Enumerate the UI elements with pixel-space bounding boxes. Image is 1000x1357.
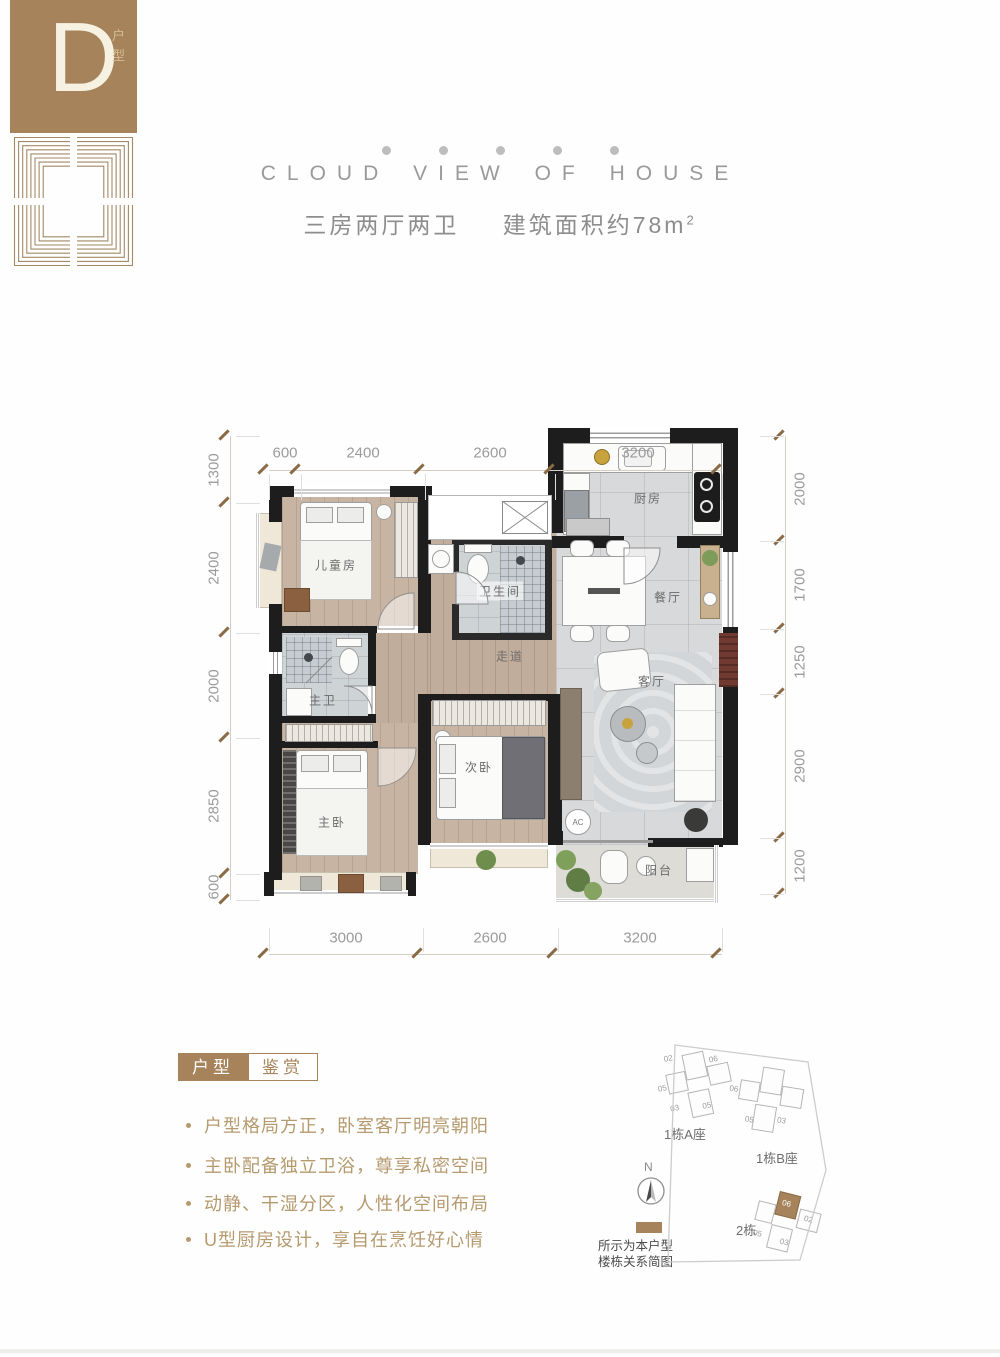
bullet-icon bbox=[186, 1163, 191, 1168]
toilet bbox=[467, 554, 489, 584]
feature-tag-primary: 户型 bbox=[178, 1053, 248, 1081]
room-label-living: 客厅 bbox=[638, 673, 666, 690]
nightstand bbox=[376, 504, 392, 520]
cushion bbox=[300, 876, 322, 891]
dim-right-2: 1700 bbox=[792, 568, 809, 601]
extension-line bbox=[722, 474, 723, 500]
plant bbox=[556, 850, 576, 870]
feature-tag-secondary: 鉴赏 bbox=[248, 1053, 318, 1081]
extension-line bbox=[236, 436, 260, 437]
room-label-dining: 餐厅 bbox=[654, 589, 682, 606]
unit-number: 03 bbox=[776, 1115, 786, 1125]
dim-bottom-1: 3000 bbox=[329, 930, 362, 947]
room-label-corridor: 走道 bbox=[496, 648, 524, 665]
logo-block: D 户型 bbox=[10, 0, 137, 133]
bottom-divider bbox=[0, 1349, 1000, 1353]
feature-item: 户型格局方正，卧室客厅明亮朝阳 bbox=[186, 1112, 606, 1138]
ac-unit: AC bbox=[565, 809, 591, 835]
dim-right-1: 2000 bbox=[792, 472, 809, 505]
unit-number: 05 bbox=[744, 1114, 754, 1124]
pillow bbox=[439, 778, 456, 808]
wall-segment bbox=[648, 838, 723, 847]
sliding-door bbox=[563, 840, 653, 843]
legend-line1: 所示为本户型 bbox=[598, 1238, 673, 1254]
extension-line bbox=[236, 633, 260, 634]
bench bbox=[283, 750, 296, 854]
dimension-tick bbox=[218, 626, 229, 637]
duct-x-box bbox=[502, 501, 548, 534]
plant bbox=[702, 550, 718, 566]
building-1B-label: 1栋B座 bbox=[756, 1148, 798, 1167]
toilet-tank bbox=[464, 544, 492, 553]
pillow bbox=[301, 755, 329, 772]
extension-line bbox=[760, 838, 784, 839]
dining-chair bbox=[570, 625, 594, 642]
dimension-line-right bbox=[785, 436, 786, 894]
north-label: N bbox=[644, 1160, 653, 1174]
extension-line bbox=[760, 694, 784, 695]
dimension-tick bbox=[546, 947, 557, 958]
room-label-bathroom: 卫生间 bbox=[477, 582, 523, 601]
bullet-icon bbox=[186, 1237, 191, 1242]
plant bbox=[476, 850, 496, 870]
dim-left-3: 2000 bbox=[206, 669, 223, 702]
stool bbox=[284, 588, 310, 612]
dimension-tick bbox=[218, 496, 229, 507]
subtitle-rooms: 三房两厅两卫 bbox=[303, 212, 459, 238]
extension-line bbox=[722, 928, 723, 952]
washing-machine bbox=[686, 848, 714, 882]
dimension-line-top bbox=[269, 470, 722, 471]
unit-number: 06 bbox=[708, 1054, 719, 1065]
wall-segment bbox=[418, 694, 431, 845]
page: D 户型 CLOUD VIEW OF HOUSE 三房两厅两卫 建筑面积约78m… bbox=[0, 0, 1000, 1357]
dim-right-4: 2900 bbox=[792, 749, 809, 782]
tv-console bbox=[560, 688, 582, 800]
extension-line bbox=[236, 738, 260, 739]
extension-line bbox=[555, 474, 556, 500]
dim-left-1: 1300 bbox=[206, 453, 223, 486]
extension-line bbox=[423, 928, 424, 952]
building-2-label: 2栋 bbox=[736, 1220, 756, 1239]
pillow bbox=[333, 755, 361, 772]
table-decor bbox=[622, 718, 633, 729]
dimension-tick bbox=[257, 947, 268, 958]
window bbox=[556, 898, 718, 903]
room-label-kitchen: 厨房 bbox=[634, 490, 662, 507]
extension-line bbox=[301, 474, 302, 500]
burner bbox=[700, 500, 713, 513]
dimension-tick bbox=[773, 687, 784, 698]
dimension-tick bbox=[773, 887, 784, 898]
wall-segment bbox=[368, 633, 376, 686]
window bbox=[723, 552, 738, 627]
extension-line bbox=[269, 474, 270, 500]
window bbox=[255, 513, 260, 608]
unit-number: 05 bbox=[657, 1083, 668, 1094]
wardrobe bbox=[432, 700, 546, 726]
wall-segment bbox=[545, 538, 552, 640]
basin-bowl bbox=[432, 550, 450, 568]
window bbox=[294, 486, 390, 497]
logo-label: 户型 bbox=[112, 26, 126, 65]
dimension-tick bbox=[218, 429, 229, 440]
room-label-kids: 儿童房 bbox=[315, 557, 357, 574]
subtitle-sup: 2 bbox=[686, 212, 696, 227]
blanket bbox=[502, 737, 545, 819]
dimension-tick bbox=[218, 867, 229, 878]
building-1B: 06 05 03 bbox=[733, 1063, 807, 1138]
dimension-tick bbox=[773, 534, 784, 545]
bullet-icon bbox=[186, 1123, 191, 1128]
feature-text: U型厨房设计，享自在烹饪好心情 bbox=[204, 1230, 484, 1250]
dining-chair bbox=[606, 625, 630, 642]
feature-text: 主卧配备独立卫浴，尊享私密空间 bbox=[204, 1156, 489, 1176]
dimension-line-left bbox=[230, 436, 231, 900]
window bbox=[269, 652, 282, 674]
decor-plate bbox=[594, 449, 610, 465]
extension-line bbox=[760, 436, 784, 437]
window bbox=[590, 428, 670, 443]
toilet bbox=[339, 648, 359, 675]
pouf bbox=[684, 808, 708, 832]
wall-segment bbox=[264, 872, 274, 896]
pillow bbox=[306, 507, 333, 523]
wall-segment bbox=[269, 640, 282, 880]
window bbox=[430, 843, 548, 849]
dim-top-3: 2600 bbox=[473, 445, 506, 462]
shower-drain bbox=[304, 653, 313, 662]
logo-letter: D bbox=[48, 4, 119, 112]
extension-line bbox=[236, 900, 260, 901]
pillow bbox=[337, 507, 364, 523]
dimension-tick bbox=[773, 831, 784, 842]
dim-right-5: 1200 bbox=[792, 849, 809, 882]
dimension-tick bbox=[411, 947, 422, 958]
extension-line bbox=[236, 874, 260, 875]
window bbox=[714, 845, 719, 903]
dimension-tick bbox=[773, 429, 784, 440]
feature-text: 户型格局方正，卧室客厅明亮朝阳 bbox=[204, 1116, 489, 1136]
feature-item: 主卧配备独立卫浴，尊享私密空间 bbox=[186, 1152, 606, 1178]
building-2: 06 02 05 03 bbox=[749, 1187, 826, 1263]
burner bbox=[700, 478, 713, 491]
dining-chair bbox=[606, 540, 630, 557]
building-1A: 02 05 06 03 05 bbox=[662, 1046, 738, 1124]
pillow bbox=[439, 744, 456, 774]
bullet-icon bbox=[186, 1201, 191, 1206]
sofa bbox=[674, 684, 716, 802]
wardrobe bbox=[394, 502, 418, 578]
dimension-tick bbox=[289, 463, 300, 474]
decor-cabinet bbox=[719, 633, 738, 687]
dim-bottom-3: 3200 bbox=[623, 930, 656, 947]
legend-line2: 楼栋关系简图 bbox=[598, 1254, 673, 1270]
unit-number: 06 bbox=[729, 1084, 739, 1094]
wall-segment bbox=[269, 604, 282, 640]
wall-segment bbox=[452, 633, 552, 640]
dimension-tick bbox=[413, 463, 424, 474]
dimension-tick bbox=[710, 947, 721, 958]
extension-line bbox=[760, 894, 784, 895]
wall-segment bbox=[282, 716, 376, 723]
dim-right-3: 1250 bbox=[792, 645, 809, 678]
entry-cabinet bbox=[566, 518, 610, 536]
dimension-tick bbox=[773, 622, 784, 633]
shower-drain bbox=[516, 556, 525, 565]
wall-segment bbox=[548, 831, 563, 845]
wall-segment bbox=[269, 486, 282, 522]
lounge-chair bbox=[600, 850, 628, 884]
subtitle: 三房两厅两卫 建筑面积约78m2 bbox=[0, 206, 1000, 240]
extension-line bbox=[760, 629, 784, 630]
extension-line bbox=[425, 474, 426, 500]
wall-segment bbox=[282, 626, 377, 633]
feature-item: 动静、干湿分区，人性化空间布局 bbox=[186, 1190, 606, 1216]
plant bbox=[584, 882, 602, 900]
wall-segment bbox=[282, 741, 378, 748]
unit-number: 05 bbox=[702, 1100, 713, 1111]
toilet-tank bbox=[336, 638, 362, 647]
dimension-line-bottom bbox=[269, 954, 722, 955]
building-1A-label: 1栋A座 bbox=[664, 1124, 706, 1143]
dim-left-4: 2850 bbox=[206, 789, 223, 822]
side-table bbox=[636, 742, 658, 764]
dim-top-1: 600 bbox=[272, 445, 297, 462]
dining-chair bbox=[570, 540, 594, 557]
room-label-second-bedroom: 次卧 bbox=[465, 759, 493, 776]
unit-number: 03 bbox=[669, 1103, 680, 1114]
feature-text: 动静、干湿分区，人性化空间布局 bbox=[204, 1194, 489, 1214]
room-label-balcony: 阳台 bbox=[645, 862, 673, 879]
dim-left-2: 2400 bbox=[206, 551, 223, 584]
dimension-tick bbox=[257, 463, 268, 474]
table-decor bbox=[588, 588, 620, 594]
feature-item: U型厨房设计，享自在烹饪好心情 bbox=[186, 1226, 606, 1252]
dim-bottom-2: 2600 bbox=[473, 930, 506, 947]
extension-line bbox=[236, 503, 260, 504]
wardrobe bbox=[285, 724, 373, 742]
dimension-tick bbox=[218, 731, 229, 742]
bay-table bbox=[338, 874, 364, 893]
legend-swatch bbox=[636, 1222, 662, 1233]
extension-line bbox=[558, 928, 559, 952]
room-label-master-bath: 主卫 bbox=[309, 692, 337, 709]
extension-line bbox=[269, 928, 270, 952]
subtitle-area: 建筑面积约78m bbox=[503, 212, 687, 238]
vase bbox=[703, 592, 717, 606]
cushion bbox=[380, 876, 402, 891]
title-english: CLOUD VIEW OF HOUSE bbox=[0, 162, 1000, 186]
unit-number: 02 bbox=[663, 1053, 674, 1064]
dim-top-4: 3200 bbox=[621, 445, 654, 462]
extension-line bbox=[760, 541, 784, 542]
room-label-master-bedroom: 主卧 bbox=[318, 814, 346, 831]
title-dots bbox=[0, 142, 1000, 160]
dim-top-2: 2400 bbox=[346, 445, 379, 462]
